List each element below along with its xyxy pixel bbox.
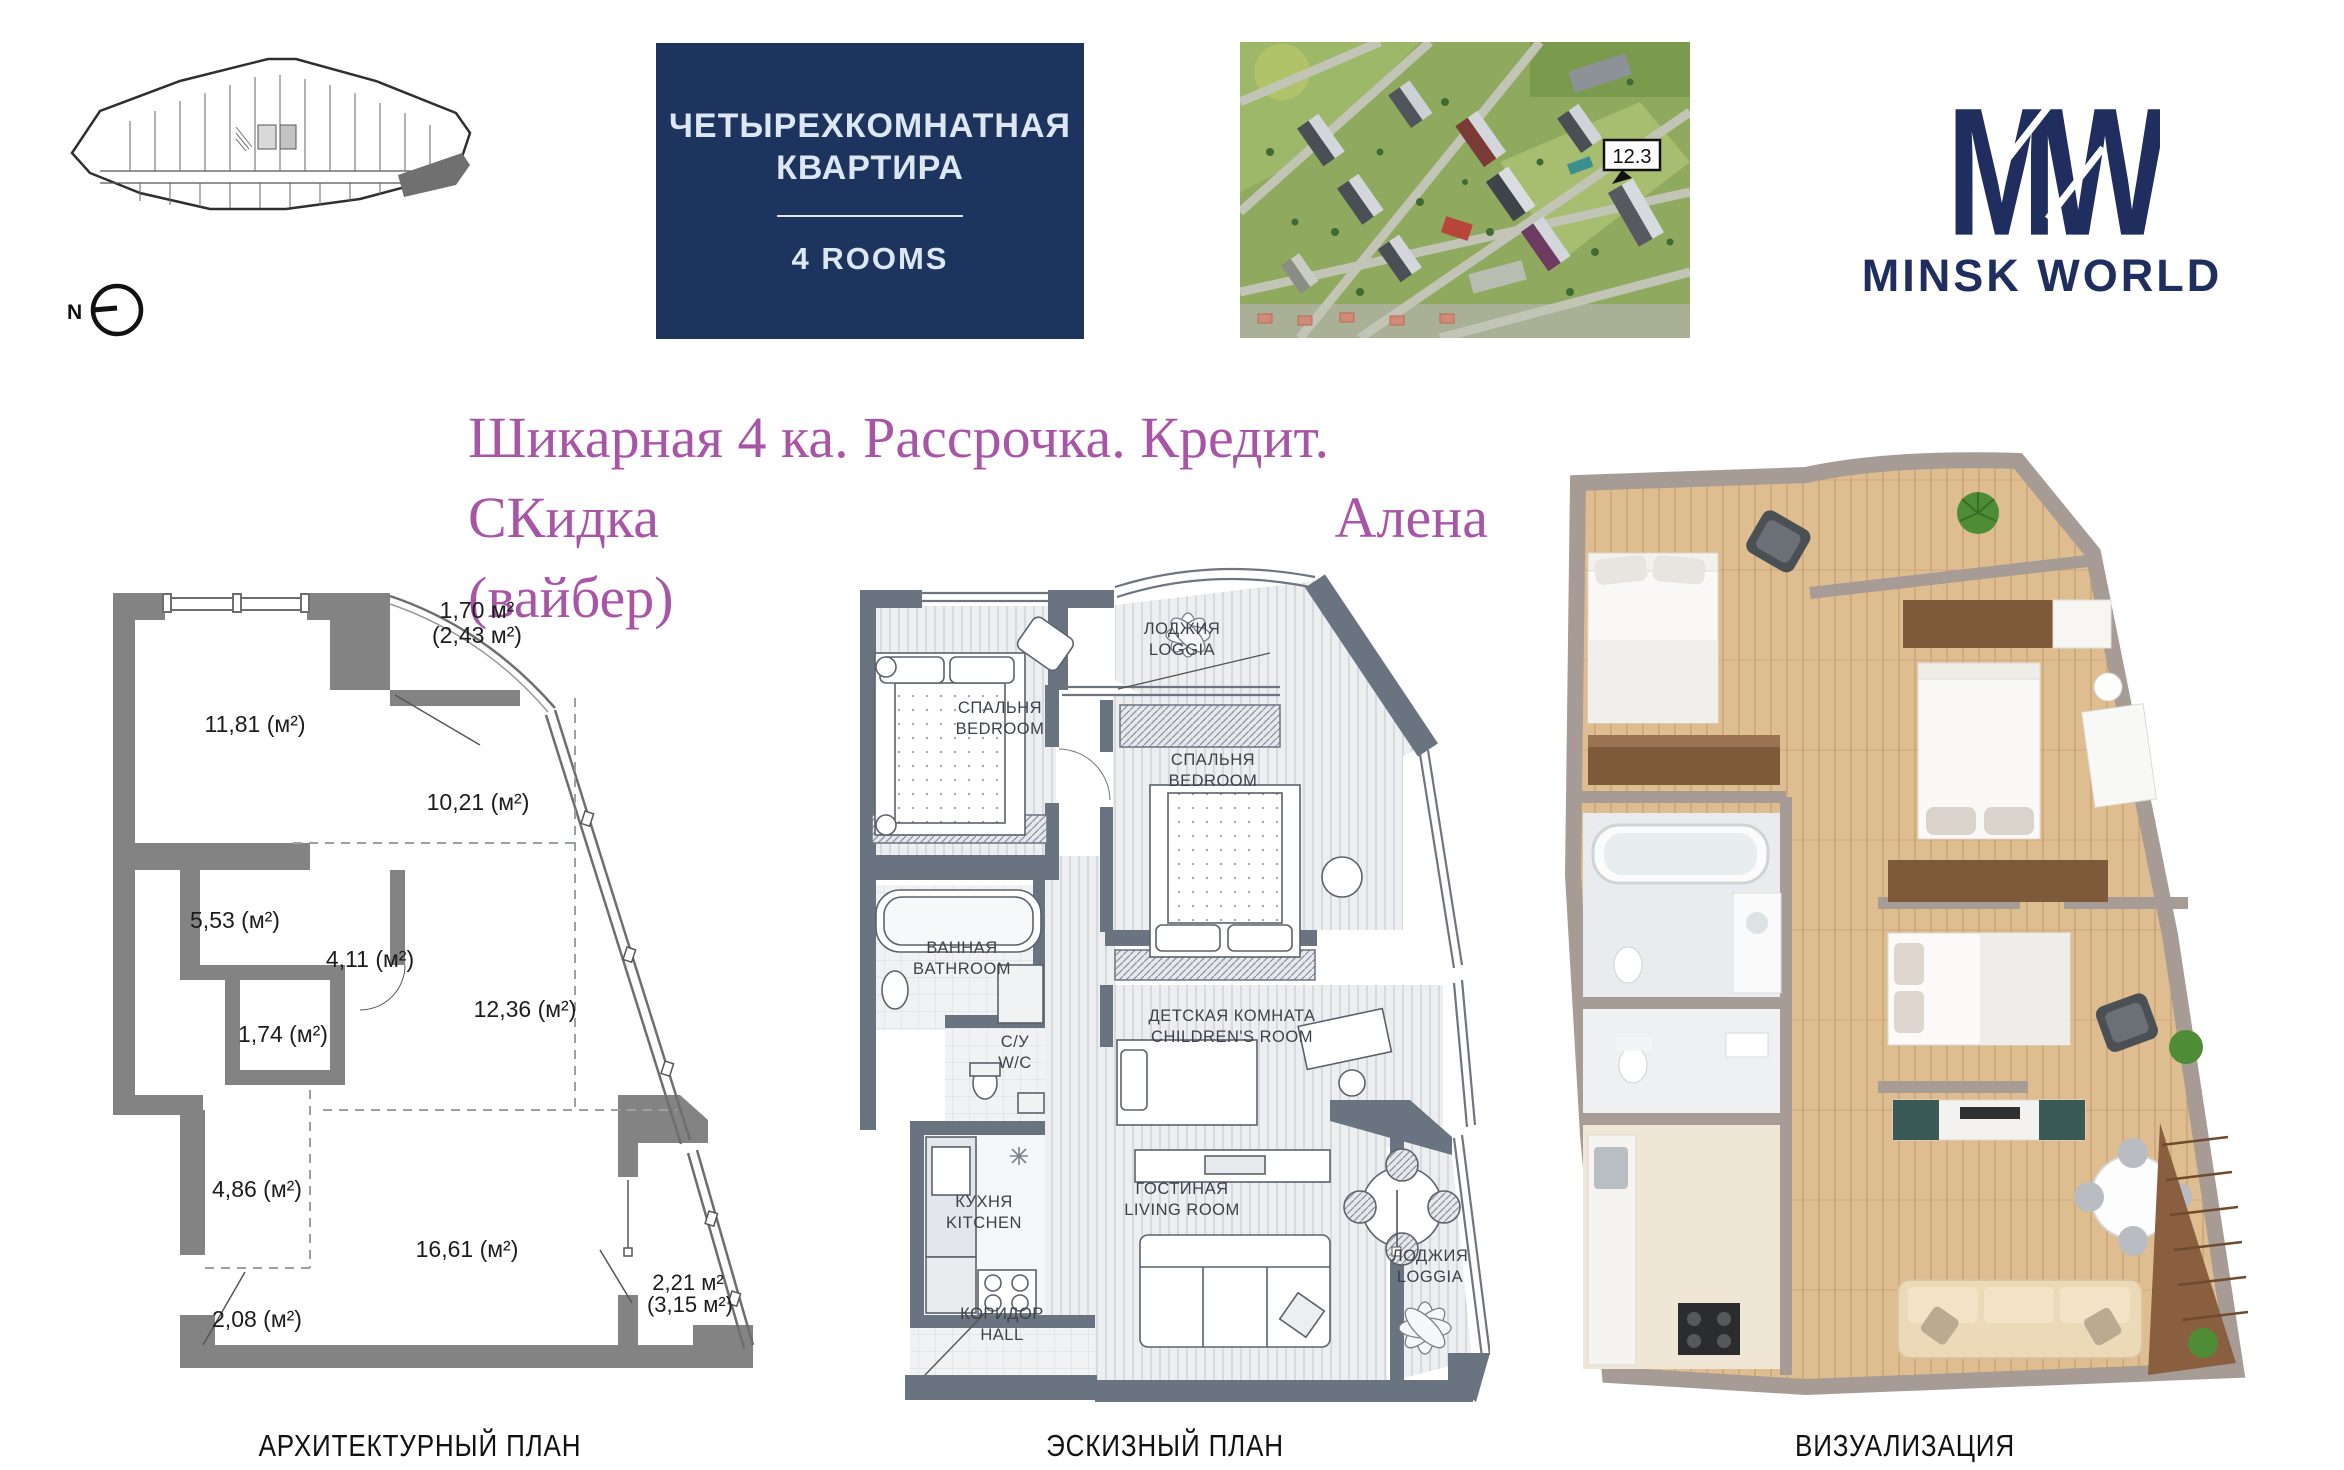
caption-sketch: ЭСКИЗНЫЙ ПЛАН	[955, 1428, 1375, 1464]
label-bedroom1-ru: СПАЛЬНЯ	[958, 699, 1042, 717]
label-bathroom-ru: ВАННАЯ	[926, 939, 997, 957]
label-loggia-bottom-en: LOGGIA	[1397, 1268, 1463, 1286]
label-hall-ru: КОРИДОР	[960, 1305, 1044, 1323]
area-closet: 1,74 (м²)	[238, 1021, 328, 1047]
label-wc-en: W/C	[998, 1054, 1032, 1072]
title-divider	[777, 215, 963, 217]
title-box: ЧЕТЫРЕХКОМНАТНАЯ КВАРТИРА 4 ROOMS	[656, 43, 1084, 339]
label-bedroom1-en: BEDROOM	[956, 720, 1045, 738]
promo-discount: СКидка	[468, 478, 659, 558]
title-line1: ЧЕТЫРЕХКОМНАТНАЯ	[669, 105, 1071, 147]
area-room-right: 10,21 (м²)	[427, 789, 530, 815]
label-loggia-top-ru: ЛОДЖИЯ	[1144, 620, 1221, 638]
label-bedroom2-en: BEDROOM	[1169, 772, 1258, 790]
label-hall-en: HALL	[980, 1326, 1023, 1344]
label-kitchen-en: KITCHEN	[946, 1214, 1022, 1232]
building-floor-overview	[60, 25, 480, 240]
caption-architectural: АРХИТЕКТУРНЫЙ ПЛАН	[210, 1428, 630, 1464]
label-loggia-top-en: LOGGIA	[1149, 641, 1215, 659]
north-arrow-icon: N	[55, 272, 165, 352]
architectural-plan: 11,81 (м²) 1,70 м² (2,43 м²) 10,21 (м²) …	[85, 550, 765, 1380]
label-wc-ru: С/У	[1001, 1033, 1030, 1051]
flyer-page: N ЧЕТЫРЕХКОМНАТНАЯ КВАРТИРА 4 ROOMS	[0, 0, 2344, 1470]
aerial-render: 12.3	[1240, 42, 1690, 338]
visualization-plan	[1548, 435, 2248, 1405]
north-label: N	[67, 301, 82, 324]
label-bedroom2-ru: СПАЛЬНЯ	[1171, 751, 1255, 769]
title-line2: КВАРТИРА	[776, 147, 964, 189]
minsk-world-monogram-icon: MW	[1940, 58, 2160, 248]
area-loggia-top: 1,70 м²	[440, 597, 515, 623]
label-living-ru: ГОСТИНАЯ	[1136, 1180, 1229, 1198]
promo-line1: Шикарная 4 ка. Рассрочка. Кредит.	[468, 398, 1488, 478]
label-bathroom-en: BATHROOM	[913, 960, 1011, 978]
label-kitchen-ru: КУХНЯ	[955, 1193, 1013, 1211]
label-children-ru: ДЕТСКАЯ КОМНАТА	[1149, 1007, 1316, 1025]
area-loggia-top-total: (2,43 м²)	[432, 622, 522, 648]
minsk-world-wordmark: MINSK WORLD	[1832, 250, 2252, 302]
label-children-en: CHILDREN'S ROOM	[1151, 1028, 1313, 1046]
label-loggia-bottom-ru: ЛОДЖИЯ	[1392, 1247, 1469, 1265]
area-entry: 2,08 (м²)	[212, 1306, 302, 1332]
area-room-small: 5,53 (м²)	[190, 907, 280, 933]
sketch-plan: СПАЛЬНЯ BEDROOM ЛОДЖИЯ LOGGIA СПАЛЬНЯ BE…	[850, 535, 1490, 1415]
area-hall-inner: 4,11 (м²)	[326, 946, 414, 972]
marker-label: 12.3	[1613, 146, 1652, 168]
area-room-mid: 12,36 (м²)	[474, 996, 577, 1022]
title-subtitle: 4 ROOMS	[792, 241, 949, 277]
label-living-en: LIVING ROOM	[1124, 1201, 1240, 1219]
area-loggia-bottom-total: (3,15 м²)	[647, 1292, 733, 1317]
caption-visualization: ВИЗУАЛИЗАЦИЯ	[1695, 1428, 2115, 1464]
area-bedroom: 11,81 (м²)	[204, 711, 305, 737]
area-living: 16,61 (м²)	[416, 1236, 519, 1262]
area-corridor: 4,86 (м²)	[212, 1176, 302, 1202]
